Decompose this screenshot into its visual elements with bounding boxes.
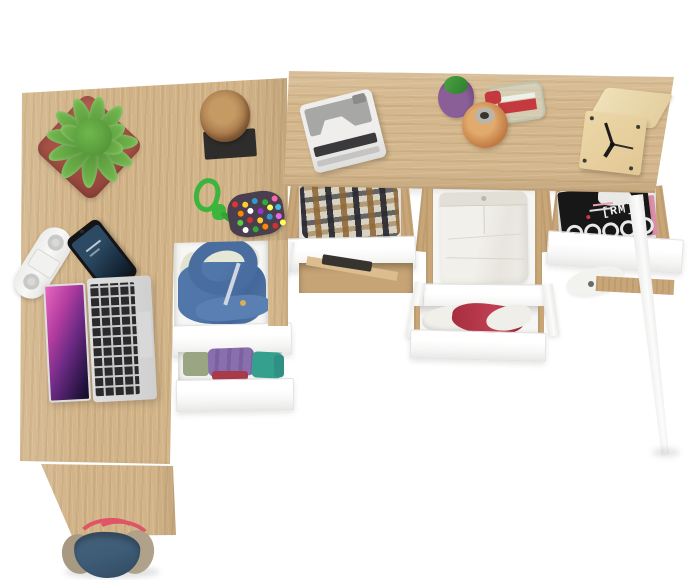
clock-screw [629,166,633,170]
trousers-fold-line [446,257,524,259]
white-trousers [439,191,529,285]
red-cloth-drawer-front [410,329,547,362]
cap-center-dot [480,112,489,119]
trousers-fly-seam [483,206,484,234]
zipper-pull [240,300,246,306]
wood-stump [200,90,250,142]
clock-screw [636,125,640,129]
laptop [43,273,158,406]
trousers-button [481,196,486,201]
clock-front-face [579,110,648,175]
socket-hole [20,271,42,293]
clock-center-dot [610,142,616,148]
plant-center [74,118,112,156]
perfume-green-cap [444,76,468,94]
cube-clock [580,88,672,174]
clock-screw [590,116,594,120]
laptop-trackpad [138,311,153,358]
clothes-drawer-front [176,378,295,412]
screen-text-line [89,248,100,257]
metal-bracket [588,281,594,287]
left-desk-side-strip [268,236,288,326]
leg-foot-shadow [652,448,680,457]
perfume-bottle-amber [462,102,508,148]
pouch-beads [232,201,239,208]
drawer-side-rim [535,184,542,288]
folded-cloth-teal [274,355,284,377]
wood-sliver [596,276,675,295]
trousers-fold-line [448,233,522,239]
drawer-side-rim [426,184,433,288]
socket-hole [45,232,67,254]
clock-screw [582,158,586,162]
clock-second-hand [612,143,633,149]
folded-cloth-sage [183,352,209,376]
laptop-keyboard [90,282,140,396]
plaid-shirt [300,180,401,242]
perfume-amber-cap [475,107,495,124]
top-desk-mid-leg [541,283,559,336]
laptop-screen [43,283,91,403]
magazine-red-dot [586,215,590,219]
laptop-body [87,275,157,402]
drawer-side-rim [538,306,544,334]
product-photo-scene: [RM] [0,0,700,580]
